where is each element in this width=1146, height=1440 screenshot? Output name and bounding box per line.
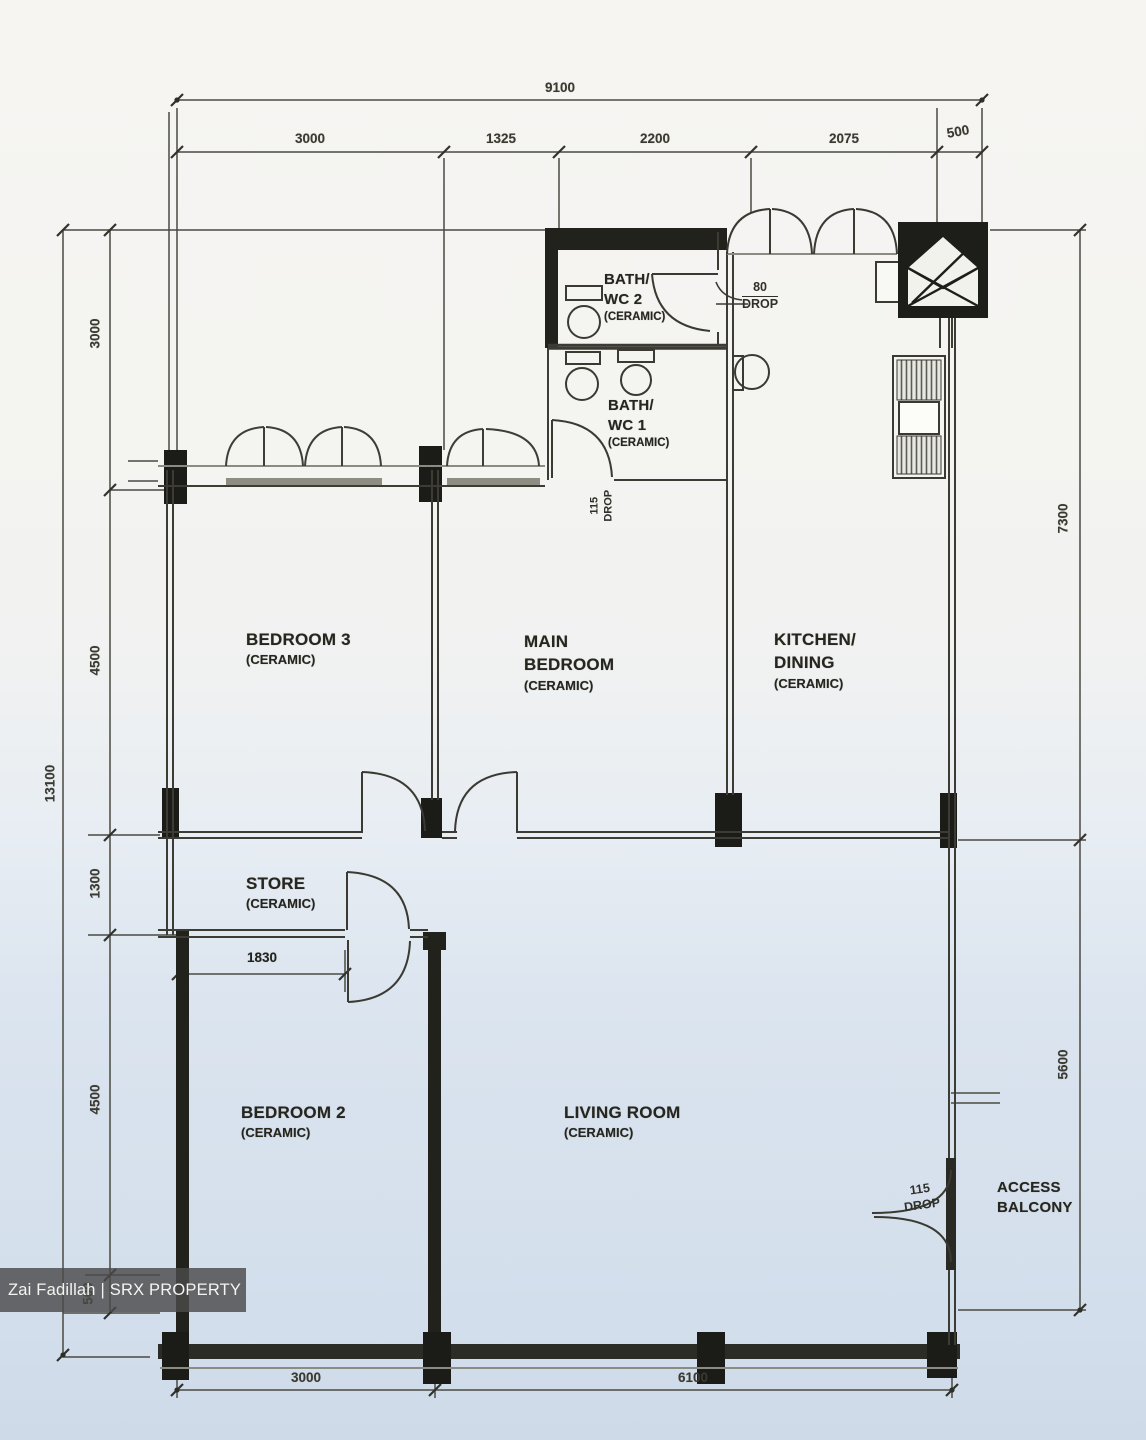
drop-word: DROP <box>742 297 778 313</box>
windows <box>226 427 540 485</box>
store-label: STORE (CERAMIC) <box>246 872 315 913</box>
drop-value: 80 <box>742 280 778 297</box>
dim-top-seg4: 2075 <box>809 131 879 146</box>
basin-wc1 <box>618 350 654 395</box>
room-name: BATH/ <box>608 396 669 416</box>
room-name: STORE <box>246 872 315 895</box>
room-finish: (CERAMIC) <box>246 651 351 669</box>
main-bedroom-label: MAIN BEDROOM (CERAMIC) <box>524 630 614 695</box>
room-finish: (CERAMIC) <box>524 677 614 695</box>
dim-top-seg3: 2200 <box>620 131 690 146</box>
room-name: BEDROOM <box>524 653 614 676</box>
dim-left-seg1: 3000 <box>88 299 103 369</box>
drop-115-balcony-label: 115 DROP <box>896 1179 946 1216</box>
dim-bottom-seg2: 6100 <box>658 1370 728 1385</box>
dim-bottom-seg1: 3000 <box>271 1370 341 1385</box>
dim-store-width: 1830 <box>227 950 297 965</box>
access-balcony-label: ACCESS BALCONY <box>997 1178 1073 1218</box>
room-name: MAIN <box>524 630 614 653</box>
dim-top-seg1: 3000 <box>275 131 345 146</box>
room-finish: (CERAMIC) <box>604 310 665 325</box>
bedroom3-label: BEDROOM 3 (CERAMIC) <box>246 628 351 669</box>
drop-80-label: 80 DROP <box>742 280 778 312</box>
refuse-chute-icon <box>898 222 988 348</box>
watermark: Zai Fadillah | SRX PROPERTY <box>0 1268 246 1312</box>
room-name: ACCESS <box>997 1178 1073 1198</box>
room-name: BEDROOM 2 <box>241 1101 346 1124</box>
watermark-text: Zai Fadillah | SRX PROPERTY <box>8 1281 241 1299</box>
room-name: WC 1 <box>608 416 669 436</box>
toilet-wc2 <box>566 286 602 338</box>
dim-left-total: 13100 <box>43 749 58 819</box>
room-finish: (CERAMIC) <box>564 1124 680 1142</box>
kitchen-sink-counter <box>893 356 945 478</box>
dim-top-total: 9100 <box>520 80 600 95</box>
drop-word: DROP <box>602 482 616 530</box>
room-finish: (CERAMIC) <box>246 895 315 913</box>
room-name: KITCHEN/ <box>774 628 856 651</box>
kitchen-dining-label: KITCHEN/ DINING (CERAMIC) <box>774 628 856 693</box>
room-name: DINING <box>774 651 856 674</box>
floor-plan-linework <box>0 0 1146 1440</box>
drop-step-mark <box>716 282 742 300</box>
dim-left-seg4: 4500 <box>88 1065 103 1135</box>
dim-top-seg2: 1325 <box>466 131 536 146</box>
dim-right-seg2: 5600 <box>1056 1030 1071 1100</box>
room-finish: (CERAMIC) <box>241 1124 346 1142</box>
living-room-label: LIVING ROOM (CERAMIC) <box>564 1101 680 1142</box>
room-name: BEDROOM 3 <box>246 628 351 651</box>
room-finish: (CERAMIC) <box>774 675 856 693</box>
kitchen-basin <box>733 355 769 390</box>
room-name: LIVING ROOM <box>564 1101 680 1124</box>
room-finish: (CERAMIC) <box>608 436 669 451</box>
dim-left-seg3: 1300 <box>88 849 103 919</box>
room-name: BATH/ <box>604 270 665 290</box>
walls <box>158 228 960 1384</box>
dim-left-seg2: 4500 <box>88 626 103 696</box>
dim-right-seg1: 7300 <box>1056 484 1071 554</box>
bath-wc2-label: BATH/ WC 2 (CERAMIC) <box>604 270 665 325</box>
bath-wc1-label: BATH/ WC 1 (CERAMIC) <box>608 396 669 451</box>
drop-value: 115 <box>588 482 602 530</box>
drop-115-bath1-label: 115 DROP <box>588 482 616 530</box>
floor-plan: BEDROOM 3 (CERAMIC) MAIN BEDROOM (CERAMI… <box>0 0 1146 1440</box>
toilet-wc1 <box>566 352 600 400</box>
room-name: BALCONY <box>997 1198 1073 1218</box>
room-name: WC 2 <box>604 290 665 310</box>
bedroom2-label: BEDROOM 2 (CERAMIC) <box>241 1101 346 1142</box>
